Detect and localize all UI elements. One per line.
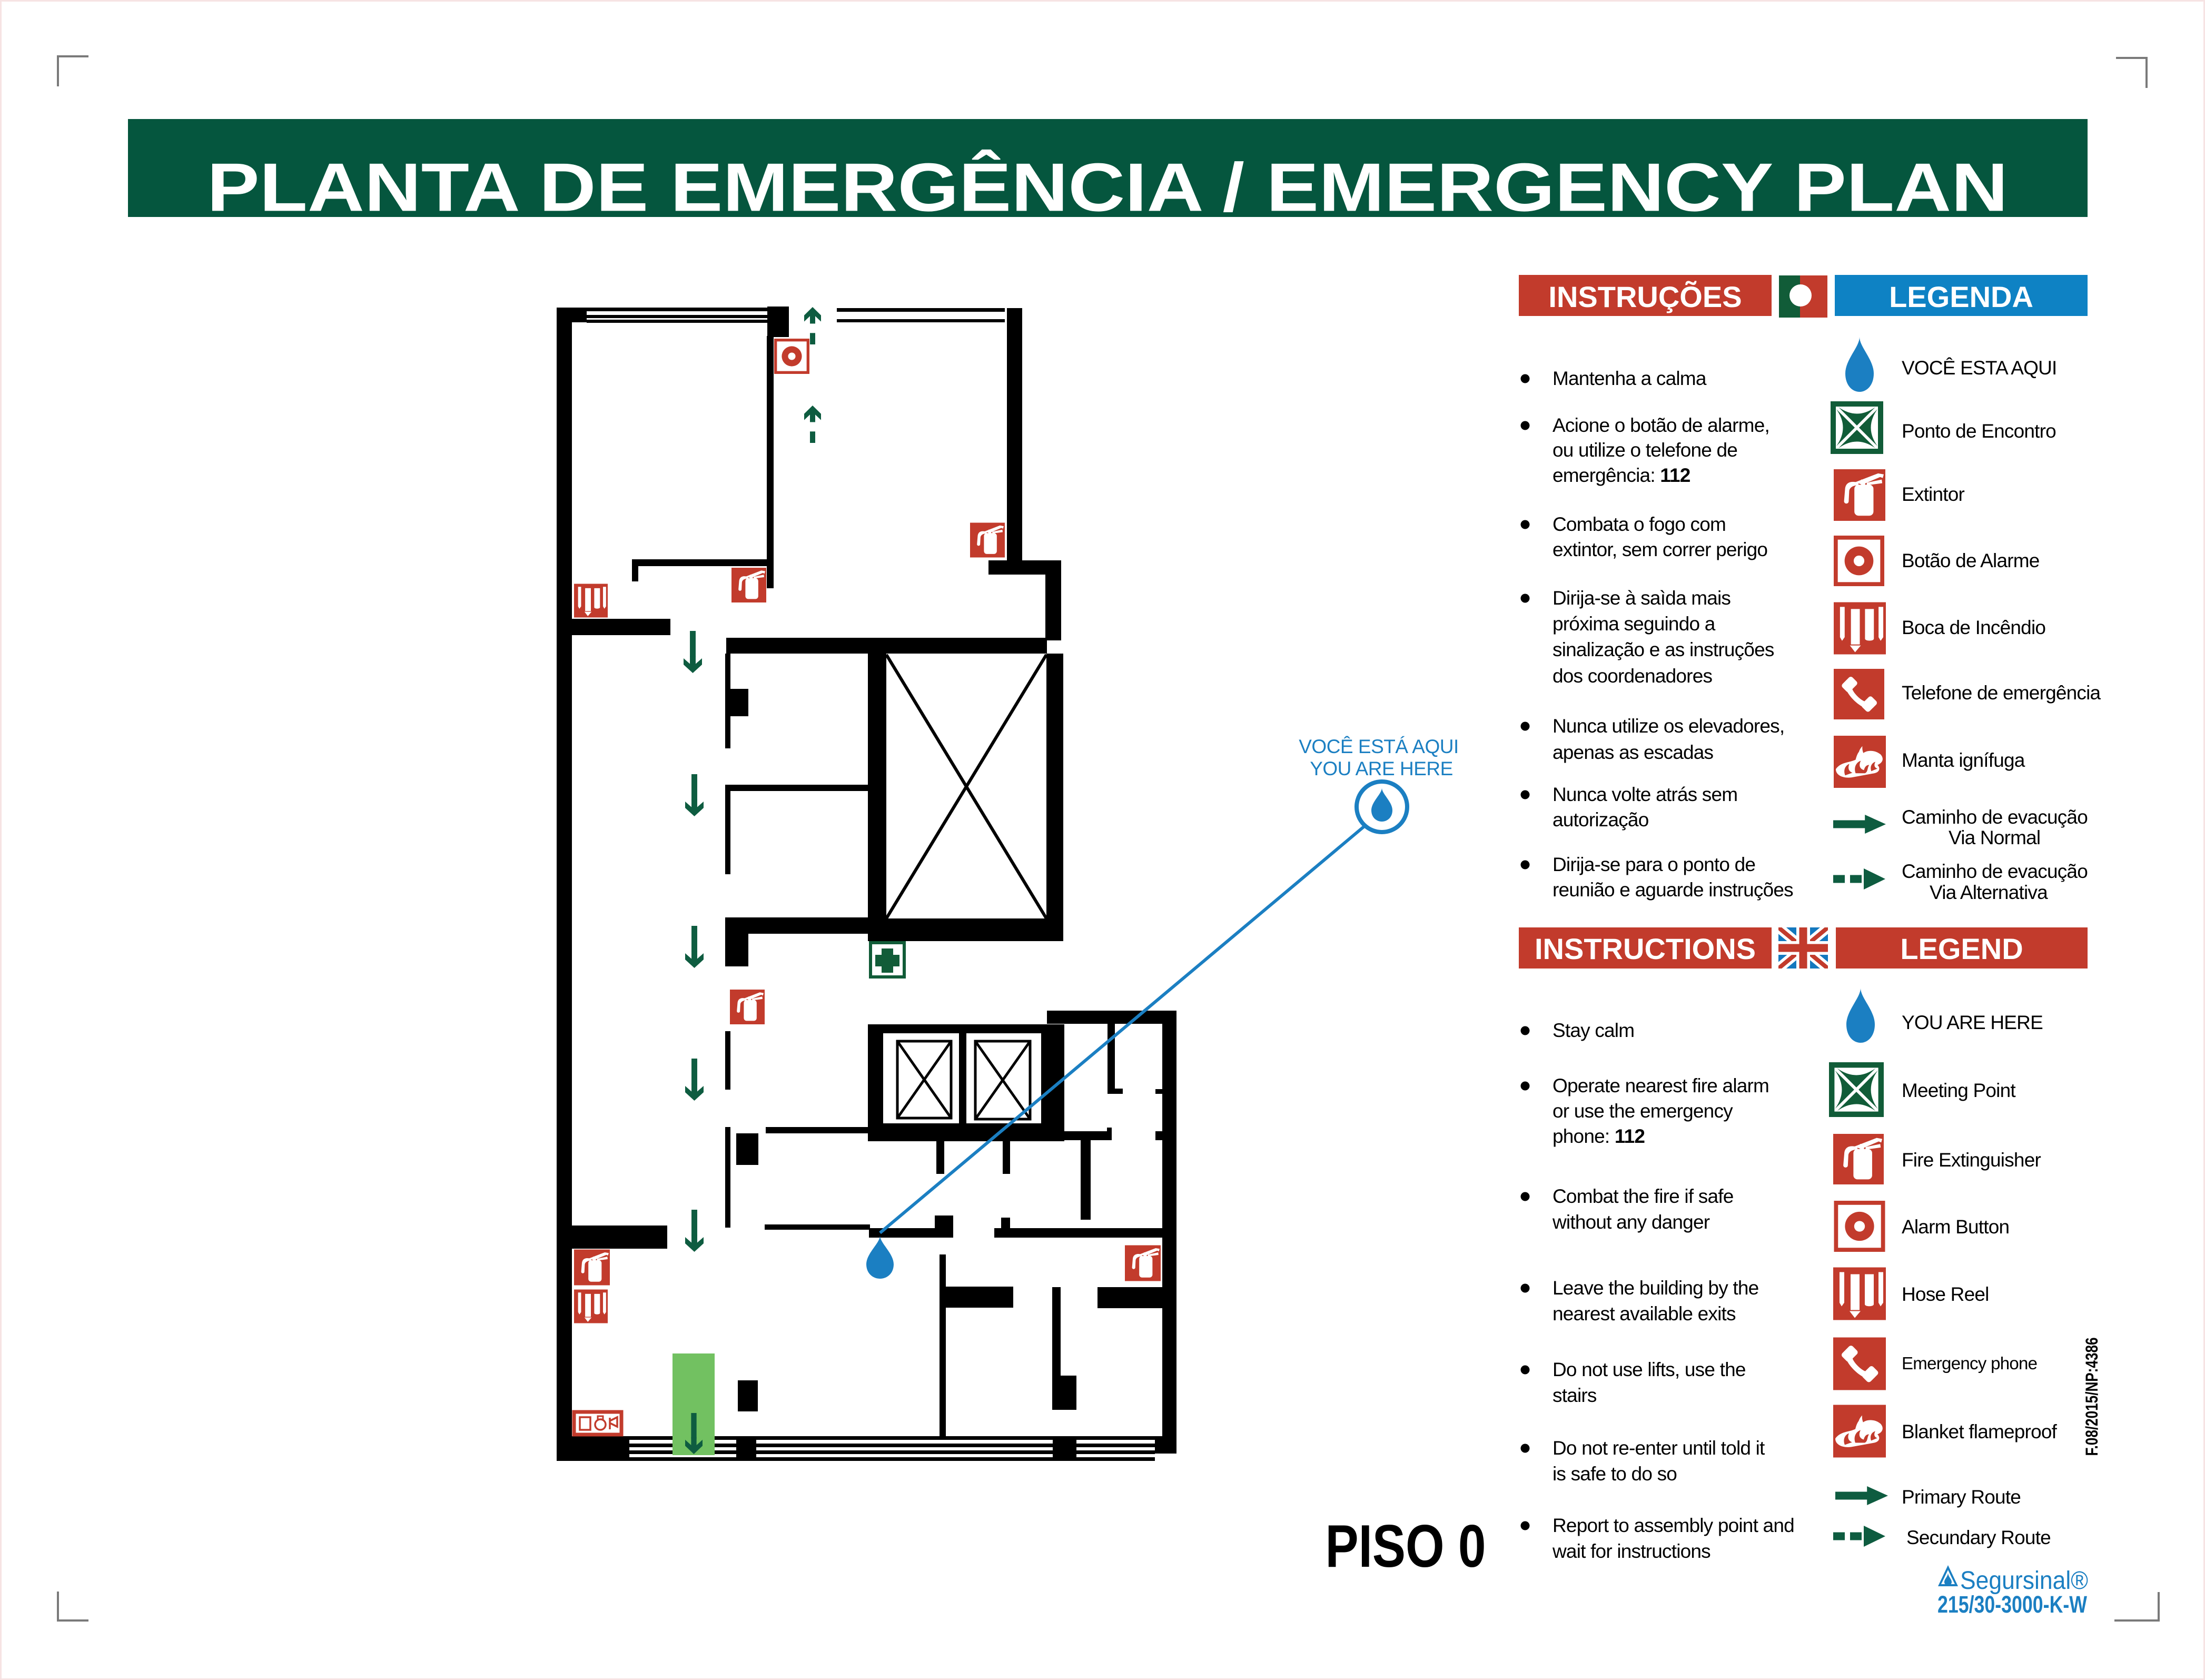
svg-text:Telefone de emergência: Telefone de emergência [1902, 682, 2101, 704]
svg-text:Alarm Button: Alarm Button [1902, 1216, 2009, 1238]
svg-text:extintor, sem correr perigo: extintor, sem correr perigo [1553, 539, 1767, 560]
svg-text:reunião e aguarde instruções: reunião e aguarde instruções [1553, 879, 1793, 901]
svg-text:wait for instructions: wait for instructions [1552, 1540, 1710, 1562]
svg-text:Boca de Incêndio: Boca de Incêndio [1902, 617, 2045, 638]
svg-text:LEGENDA: LEGENDA [1889, 280, 2033, 313]
svg-text:dos coordenadores: dos coordenadores [1553, 665, 1712, 687]
svg-text:Extintor: Extintor [1902, 483, 1965, 505]
svg-text:Do not use lifts, use the: Do not use lifts, use the [1553, 1359, 1746, 1380]
svg-text:nearest available exits: nearest available exits [1553, 1303, 1736, 1325]
svg-text:Caminho de evacução: Caminho de evacução [1902, 806, 2088, 828]
svg-text:Nunca utilize os elevadores,: Nunca utilize os elevadores, [1553, 715, 1784, 737]
svg-text:Dirija-se para o ponto de: Dirija-se para o ponto de [1553, 854, 1755, 875]
svg-text:F.08/2015/NP:4386: F.08/2015/NP:4386 [2082, 1338, 2101, 1456]
svg-text:PLANTA DE EMERGÊNCIA / EMERGEN: PLANTA DE EMERGÊNCIA / EMERGENCY PLAN [207, 149, 2008, 225]
svg-text:VOCÊ ESTÁ AQUI: VOCÊ ESTÁ AQUI [1299, 736, 1458, 757]
svg-text:YOU ARE HERE: YOU ARE HERE [1902, 1012, 2043, 1033]
svg-text:emergência: 112: emergência: 112 [1553, 465, 1690, 486]
svg-text:Do not re-enter until told it: Do not re-enter until told it [1553, 1437, 1765, 1459]
svg-text:stairs: stairs [1553, 1385, 1597, 1406]
svg-text:ou utilize o telefone de: ou utilize o telefone de [1553, 439, 1737, 461]
svg-text:215/30-3000-K-W: 215/30-3000-K-W [1937, 1591, 2087, 1618]
svg-text:VOCÊ ESTA AQUI: VOCÊ ESTA AQUI [1902, 357, 2056, 379]
svg-text:Via Alternativa: Via Alternativa [1930, 882, 2048, 903]
svg-text:PISO 0: PISO 0 [1326, 1513, 1486, 1580]
svg-text:Mantenha a calma: Mantenha a calma [1553, 368, 1707, 389]
svg-text:Primary Route: Primary Route [1902, 1486, 2021, 1508]
svg-text:INSTRUCTIONS: INSTRUCTIONS [1535, 932, 1756, 965]
svg-text:Acione o botão de alarme,: Acione o botão de alarme, [1553, 414, 1769, 436]
svg-text:without any danger: without any danger [1552, 1211, 1710, 1233]
svg-text:Stay calm: Stay calm [1553, 1020, 1634, 1041]
svg-text:Via Normal: Via Normal [1949, 827, 2040, 848]
svg-text:INSTRUÇÕES: INSTRUÇÕES [1548, 280, 1742, 313]
svg-text:Emergency phone: Emergency phone [1902, 1353, 2037, 1373]
svg-text:sinalização e as instruções: sinalização e as instruções [1553, 639, 1774, 660]
svg-text:Operate nearest fire alarm: Operate nearest fire alarm [1553, 1075, 1769, 1096]
svg-text:Nunca volte atrás sem: Nunca volte atrás sem [1553, 784, 1737, 805]
svg-text:Fire Extinguisher: Fire Extinguisher [1902, 1149, 2041, 1171]
svg-text:Combata o fogo com: Combata o fogo com [1553, 513, 1726, 535]
svg-text:Blanket flameproof: Blanket flameproof [1902, 1421, 2058, 1442]
svg-text:próxima seguindo a: próxima seguindo a [1553, 613, 1716, 635]
svg-text:Meeting Point: Meeting Point [1902, 1080, 2016, 1101]
svg-text:Hose Reel: Hose Reel [1902, 1283, 1989, 1305]
svg-text:Botão de Alarme: Botão de Alarme [1902, 550, 2040, 571]
svg-text:or use the emergency: or use the emergency [1553, 1100, 1733, 1122]
svg-text:phone: 112: phone: 112 [1553, 1125, 1645, 1147]
svg-text:is safe to do so: is safe to do so [1553, 1463, 1677, 1485]
svg-text:autorização: autorização [1553, 809, 1649, 831]
svg-text:LEGEND: LEGEND [1900, 932, 2023, 965]
svg-text:Leave the building by the: Leave the building by the [1553, 1277, 1758, 1299]
svg-text:Ponto de Encontro: Ponto de Encontro [1902, 420, 2056, 442]
svg-text:YOU ARE HERE: YOU ARE HERE [1310, 758, 1453, 779]
svg-text:apenas as escadas: apenas as escadas [1553, 742, 1714, 763]
svg-text:Report to assembly point and: Report to assembly point and [1553, 1515, 1794, 1536]
svg-text:Dirija-se à saìda mais: Dirija-se à saìda mais [1553, 587, 1731, 609]
svg-text:Caminho de evacução: Caminho de evacução [1902, 861, 2088, 882]
svg-text:Combat the fire if safe: Combat the fire if safe [1553, 1185, 1734, 1207]
svg-text:Secundary Route: Secundary Route [1906, 1527, 2051, 1548]
svg-text:Manta ignífuga: Manta ignífuga [1902, 749, 2025, 771]
